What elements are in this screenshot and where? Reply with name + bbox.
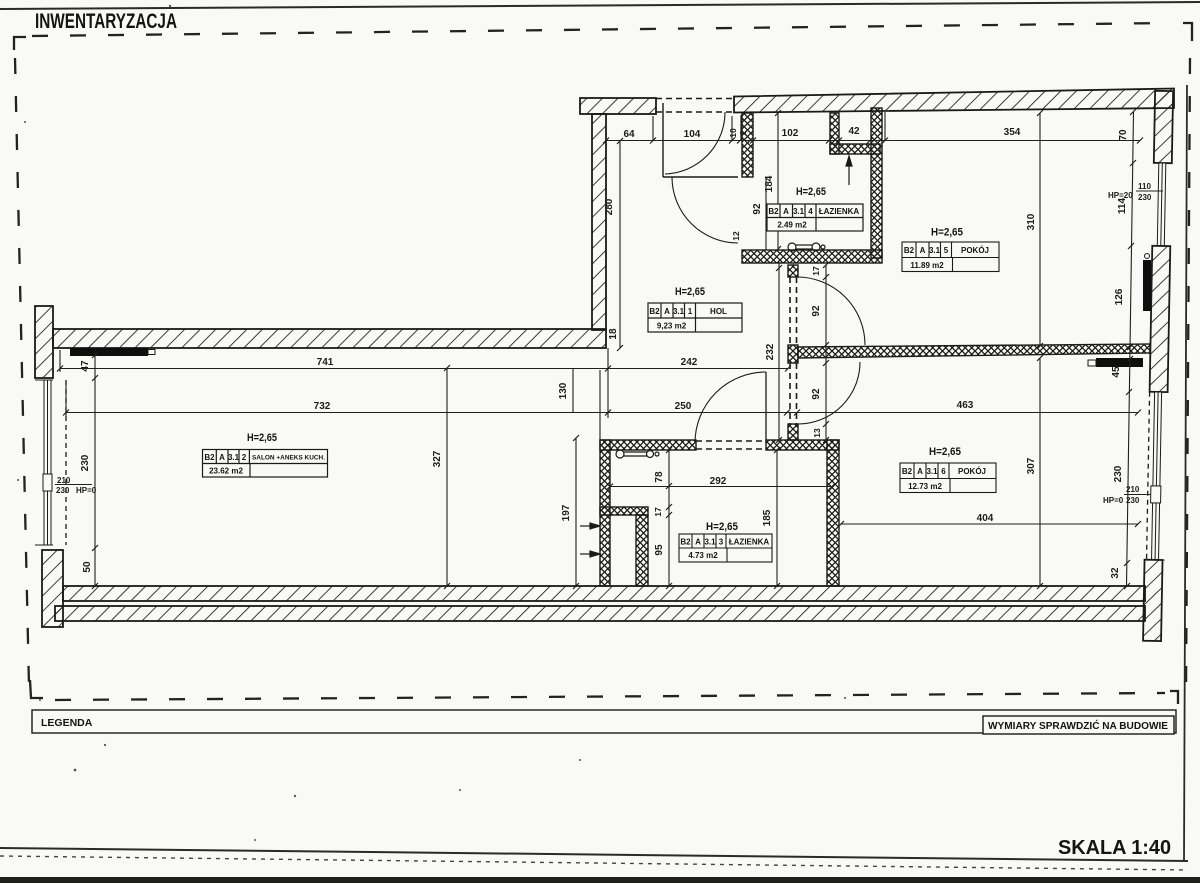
svg-text:210: 210 <box>1126 485 1140 494</box>
svg-text:42: 42 <box>848 126 860 137</box>
svg-text:230: 230 <box>1126 496 1140 505</box>
svg-text:A: A <box>695 538 701 547</box>
svg-text:463: 463 <box>957 400 974 411</box>
svg-text:126: 126 <box>1114 288 1125 305</box>
svg-text:INWENTARYZACJA: INWENTARYZACJA <box>35 10 177 33</box>
svg-text:SALON +ANEKS KUCH.: SALON +ANEKS KUCH. <box>252 455 325 462</box>
svg-text:50: 50 <box>82 561 93 573</box>
svg-text:12: 12 <box>731 231 741 241</box>
svg-text:185: 185 <box>762 509 773 526</box>
svg-text:230: 230 <box>1113 465 1124 482</box>
svg-text:B2: B2 <box>204 453 215 462</box>
svg-text:B2: B2 <box>680 538 691 547</box>
svg-text:9,23 m2: 9,23 m2 <box>657 322 687 331</box>
svg-text:232: 232 <box>765 343 776 360</box>
svg-text:17: 17 <box>811 266 821 276</box>
svg-text:327: 327 <box>432 450 443 467</box>
svg-text:A: A <box>219 453 225 462</box>
svg-text:LEGENDA: LEGENDA <box>41 717 93 729</box>
svg-text:741: 741 <box>317 357 334 368</box>
svg-text:78: 78 <box>654 471 665 483</box>
svg-text:92: 92 <box>752 203 763 215</box>
svg-text:3.1: 3.1 <box>793 207 805 216</box>
svg-text:H=2,65: H=2,65 <box>247 432 277 444</box>
svg-text:64: 64 <box>623 129 635 140</box>
svg-text:292: 292 <box>710 476 727 487</box>
svg-text:5: 5 <box>944 246 949 255</box>
svg-text:HOL: HOL <box>710 307 727 316</box>
svg-text:A: A <box>783 207 789 216</box>
svg-text:H=2,65: H=2,65 <box>931 227 963 239</box>
svg-text:17: 17 <box>653 507 663 517</box>
svg-text:354: 354 <box>1004 127 1021 138</box>
svg-text:H=2,65: H=2,65 <box>706 521 738 533</box>
svg-text:POKÓJ: POKÓJ <box>961 246 989 255</box>
svg-text:10: 10 <box>728 128 738 138</box>
svg-text:HP=0: HP=0 <box>76 486 97 495</box>
svg-text:4.73 m2: 4.73 m2 <box>688 551 718 560</box>
svg-text:2: 2 <box>738 130 748 135</box>
svg-text:210: 210 <box>57 476 71 485</box>
svg-text:310: 310 <box>1026 213 1037 230</box>
svg-text:WYMIARY SPRAWDZIĆ NA BUDOWIE: WYMIARY SPRAWDZIĆ NA BUDOWIE <box>988 719 1168 732</box>
svg-text:SKALA 1:40: SKALA 1:40 <box>1058 837 1171 859</box>
svg-text:18: 18 <box>608 328 619 340</box>
svg-text:A: A <box>664 307 670 316</box>
svg-text:404: 404 <box>977 513 994 524</box>
svg-text:H=2,65: H=2,65 <box>796 186 826 198</box>
svg-text:3.1: 3.1 <box>673 307 685 316</box>
svg-text:280: 280 <box>604 198 615 215</box>
svg-text:POKÓJ: POKÓJ <box>958 467 986 476</box>
svg-text:1: 1 <box>688 307 693 316</box>
svg-text:32: 32 <box>1110 567 1121 579</box>
svg-text:184: 184 <box>764 175 775 192</box>
svg-text:104: 104 <box>684 129 701 140</box>
svg-text:B2: B2 <box>904 246 915 255</box>
svg-text:92: 92 <box>811 388 822 400</box>
svg-text:A: A <box>917 467 923 476</box>
svg-text:11.89 m2: 11.89 m2 <box>910 261 944 270</box>
svg-text:197: 197 <box>561 504 572 521</box>
svg-text:13: 13 <box>812 428 822 438</box>
svg-text:102: 102 <box>782 128 799 139</box>
svg-text:ŁAZIENKA: ŁAZIENKA <box>819 207 860 216</box>
svg-text:B2: B2 <box>649 307 660 316</box>
svg-text:3.1: 3.1 <box>704 538 716 547</box>
svg-text:HP=0: HP=0 <box>1103 496 1124 505</box>
svg-text:B2: B2 <box>768 207 779 216</box>
svg-text:130: 130 <box>558 382 569 399</box>
svg-text:45: 45 <box>1111 366 1122 378</box>
svg-text:6: 6 <box>941 467 946 476</box>
svg-text:250: 250 <box>675 401 692 412</box>
svg-text:307: 307 <box>1026 457 1037 474</box>
svg-text:47: 47 <box>80 360 91 372</box>
svg-text:B2: B2 <box>902 467 913 476</box>
svg-text:230: 230 <box>1138 193 1152 202</box>
svg-text:2: 2 <box>242 453 247 462</box>
svg-text:110: 110 <box>1138 182 1151 191</box>
svg-text:12.73 m2: 12.73 m2 <box>908 482 942 491</box>
svg-text:732: 732 <box>314 401 331 412</box>
svg-text:HP=20: HP=20 <box>1108 191 1133 200</box>
svg-text:230: 230 <box>80 454 91 471</box>
svg-text:23.62 m2: 23.62 m2 <box>209 467 243 476</box>
svg-text:ŁAZIENKA: ŁAZIENKA <box>729 538 770 547</box>
svg-text:70: 70 <box>1118 129 1129 141</box>
svg-text:3.1: 3.1 <box>926 467 938 476</box>
svg-text:95: 95 <box>654 544 665 556</box>
svg-text:3.1: 3.1 <box>929 246 941 255</box>
svg-text:3: 3 <box>719 538 724 547</box>
svg-text:230: 230 <box>56 486 70 495</box>
svg-text:A: A <box>920 246 926 255</box>
svg-text:2.49 m2: 2.49 m2 <box>777 221 807 230</box>
svg-text:H=2,65: H=2,65 <box>929 446 961 458</box>
svg-text:3.1: 3.1 <box>228 453 240 462</box>
svg-text:92: 92 <box>811 305 822 317</box>
svg-text:4: 4 <box>808 207 813 216</box>
svg-text:H=2,65: H=2,65 <box>675 286 705 298</box>
svg-text:242: 242 <box>681 357 698 368</box>
